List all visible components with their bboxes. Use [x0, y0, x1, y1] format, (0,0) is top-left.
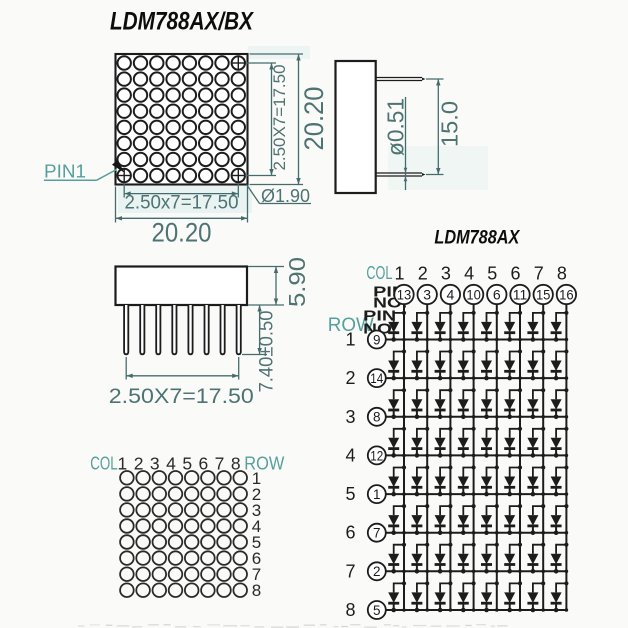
svg-text:3: 3 — [345, 407, 355, 427]
svg-text:15: 15 — [536, 286, 551, 302]
svg-text:Ø1.90: Ø1.90 — [261, 185, 310, 206]
svg-text:1: 1 — [394, 263, 404, 283]
svg-text:8: 8 — [373, 410, 381, 425]
svg-text:7: 7 — [345, 561, 355, 581]
svg-text:PIN1: PIN1 — [44, 161, 86, 182]
svg-text:4: 4 — [345, 445, 355, 465]
svg-text:7.40±0.50: 7.40±0.50 — [257, 311, 278, 393]
svg-text:8: 8 — [557, 263, 567, 283]
svg-text:11: 11 — [513, 286, 528, 302]
svg-text:COL: COL — [366, 263, 392, 283]
svg-text:12: 12 — [370, 448, 383, 463]
svg-text:16: 16 — [559, 286, 574, 302]
svg-text:1: 1 — [345, 330, 355, 350]
svg-text:7: 7 — [373, 526, 381, 541]
svg-text:2: 2 — [345, 368, 355, 388]
svg-text:6: 6 — [345, 523, 355, 543]
svg-text:20.20: 20.20 — [299, 87, 329, 151]
svg-text:6: 6 — [493, 286, 501, 302]
svg-text:COL: COL — [90, 453, 118, 473]
svg-text:3: 3 — [423, 286, 431, 302]
svg-text:2.50x7=17.50: 2.50x7=17.50 — [125, 193, 239, 214]
svg-text:6: 6 — [510, 263, 520, 283]
svg-text:3: 3 — [441, 263, 451, 283]
svg-text:14: 14 — [370, 371, 383, 386]
svg-text:ø0.51: ø0.51 — [383, 98, 409, 156]
svg-text:20.20: 20.20 — [152, 218, 212, 248]
svg-text:13: 13 — [397, 286, 412, 302]
svg-text:8: 8 — [345, 600, 355, 620]
svg-text:ROW: ROW — [244, 453, 284, 473]
svg-text:5.90: 5.90 — [284, 257, 310, 307]
svg-text:LDM788AX/BX: LDM788AX/BX — [110, 8, 254, 36]
svg-text:8: 8 — [252, 581, 261, 600]
svg-text:15.0: 15.0 — [437, 101, 463, 147]
svg-text:LDM788AX: LDM788AX — [434, 228, 520, 249]
svg-text:9: 9 — [373, 332, 381, 347]
svg-text:10: 10 — [466, 286, 481, 302]
svg-text:2.50X7=17.50: 2.50X7=17.50 — [271, 65, 289, 171]
svg-text:7: 7 — [534, 263, 544, 283]
svg-text:5: 5 — [345, 484, 355, 504]
svg-text:1: 1 — [373, 487, 381, 502]
svg-text:4: 4 — [464, 263, 474, 283]
svg-text:2: 2 — [418, 263, 428, 283]
svg-text:4: 4 — [447, 286, 455, 302]
svg-text:2.50X7=17.50: 2.50X7=17.50 — [109, 385, 254, 408]
svg-text:2: 2 — [373, 564, 381, 579]
svg-text:5: 5 — [373, 603, 381, 618]
svg-text:5: 5 — [487, 263, 497, 283]
